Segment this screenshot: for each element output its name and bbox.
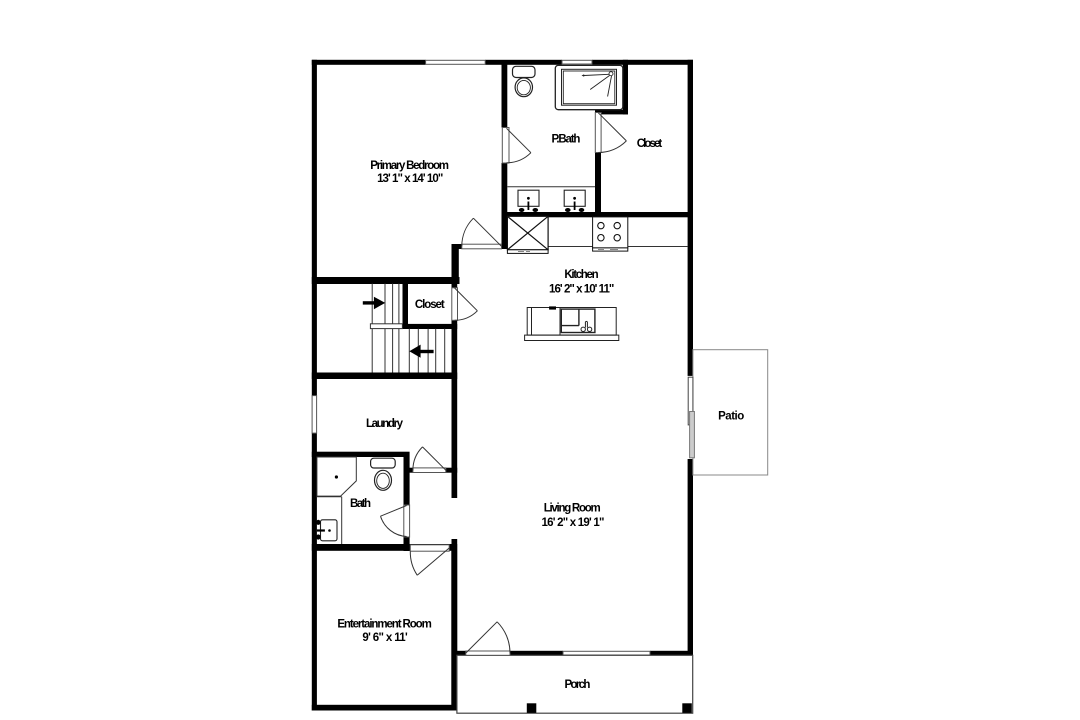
svg-text:Entertainment Room: Entertainment Room	[337, 618, 432, 630]
svg-text:Kitchen: Kitchen	[564, 269, 598, 281]
svg-text:Primary Bedroom: Primary Bedroom	[370, 160, 449, 172]
svg-text:16' 2" x 19' 1": 16' 2" x 19' 1"	[542, 517, 605, 529]
svg-text:16' 2" x 10' 11": 16' 2" x 10' 11"	[549, 283, 614, 295]
svg-text:Bath: Bath	[350, 498, 371, 510]
svg-text:P.Bath: P.Bath	[551, 134, 580, 146]
svg-text:9' 6" x 11': 9' 6" x 11'	[362, 632, 408, 644]
svg-text:Patio: Patio	[718, 411, 744, 423]
svg-text:Porch: Porch	[564, 679, 590, 691]
svg-text:Closet: Closet	[415, 299, 445, 311]
svg-text:Closet: Closet	[637, 138, 663, 150]
svg-text:13' 1" x 14' 10": 13' 1" x 14' 10"	[377, 173, 443, 185]
svg-text:Living Room: Living Room	[544, 503, 601, 515]
svg-text:Laundry: Laundry	[366, 418, 404, 430]
